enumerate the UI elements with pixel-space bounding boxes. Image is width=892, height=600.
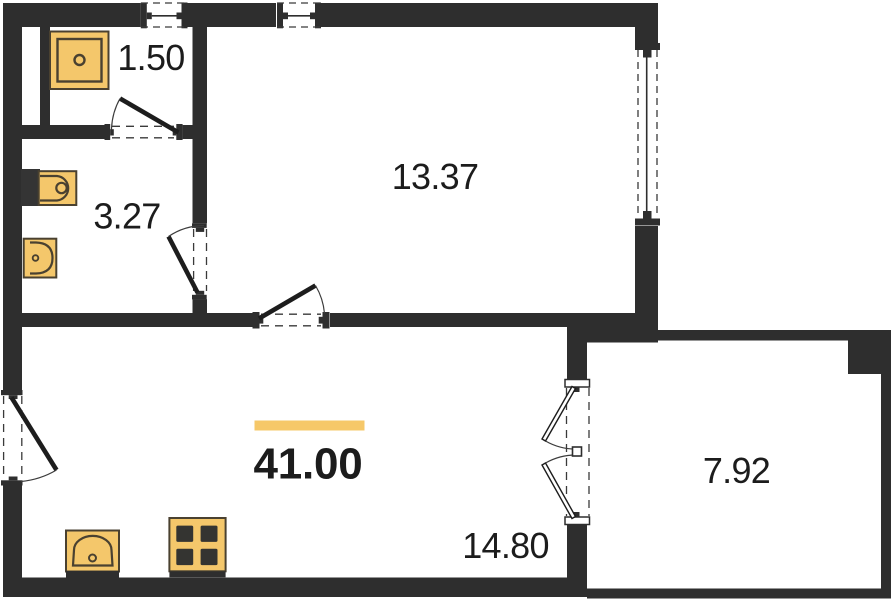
svg-text:13.37: 13.37 (392, 156, 479, 197)
svg-text:41.00: 41.00 (253, 440, 362, 489)
svg-text:7.92: 7.92 (703, 450, 770, 491)
svg-text:14.80: 14.80 (462, 525, 549, 566)
svg-text:1.50: 1.50 (117, 37, 184, 78)
svg-text:3.27: 3.27 (93, 196, 160, 237)
